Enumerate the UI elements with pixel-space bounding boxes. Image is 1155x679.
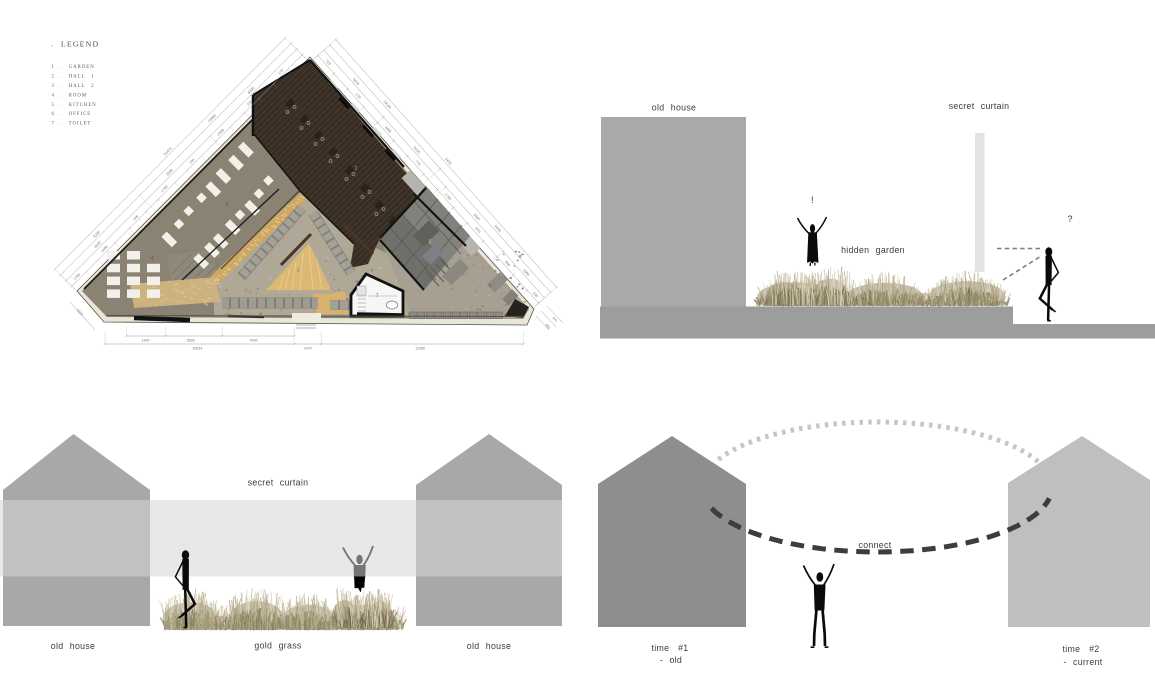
svg-text:4430: 4430	[493, 224, 501, 233]
svg-text:1700: 1700	[160, 185, 168, 193]
svg-text:100: 100	[532, 291, 539, 298]
svg-text:5: 5	[429, 239, 432, 245]
svg-text:- old: - old	[660, 655, 682, 665]
svg-text:3945: 3945	[472, 213, 480, 222]
svg-text:170: 170	[277, 68, 284, 75]
svg-text:24470: 24470	[163, 147, 173, 157]
svg-text:old house: old house	[652, 103, 696, 113]
svg-text:6 . OFFICE: 6 . OFFICE	[52, 112, 92, 117]
svg-text:1470: 1470	[304, 347, 312, 351]
svg-text:connect: connect	[859, 540, 892, 550]
svg-text:secret curtain: secret curtain	[949, 101, 1010, 111]
svg-text:4030: 4030	[250, 339, 258, 343]
svg-text:7 . TOILET: 7 . TOILET	[52, 122, 92, 127]
svg-text:4: 4	[151, 256, 154, 262]
svg-text:gold grass: gold grass	[254, 641, 301, 651]
svg-text:3480: 3480	[384, 125, 392, 134]
svg-text:725: 725	[325, 59, 332, 66]
svg-text:!: !	[811, 195, 814, 206]
svg-text:4 . ROOM: 4 . ROOM	[52, 93, 88, 98]
svg-text:6: 6	[489, 283, 492, 289]
svg-text:1780: 1780	[444, 192, 452, 201]
svg-text:secret curtain: secret curtain	[248, 478, 309, 488]
svg-text:7: 7	[376, 293, 379, 299]
svg-text:11086: 11086	[415, 347, 425, 351]
svg-text:2 . HALL 1: 2 . HALL 1	[52, 75, 95, 80]
svg-text:5 . KITCHEN: 5 . KITCHEN	[52, 103, 97, 108]
svg-text:970: 970	[551, 316, 558, 323]
svg-text:hidden garden: hidden garden	[841, 245, 905, 255]
svg-text:old house: old house	[467, 641, 511, 651]
svg-text:6020: 6020	[93, 240, 101, 248]
svg-text:775: 775	[414, 160, 421, 167]
svg-text:3: 3	[226, 202, 229, 208]
svg-text:1705: 1705	[73, 273, 81, 281]
svg-text:1 . GARDEN: 1 . GARDEN	[52, 65, 95, 70]
svg-text:1905: 1905	[522, 268, 530, 277]
svg-text:time #2: time #2	[1063, 644, 1100, 654]
svg-text:860: 860	[504, 260, 511, 267]
svg-text:2: 2	[355, 166, 358, 172]
svg-text:3695: 3695	[187, 339, 195, 343]
svg-text:10834: 10834	[192, 347, 202, 351]
svg-text:9155: 9155	[413, 146, 421, 155]
svg-text:970: 970	[474, 227, 481, 234]
svg-text:2415: 2415	[444, 157, 452, 166]
svg-text:246: 246	[189, 158, 196, 165]
svg-text:old house: old house	[51, 641, 95, 651]
svg-text:9235: 9235	[93, 230, 101, 238]
svg-text:- current: - current	[1063, 657, 1102, 667]
svg-text:1490: 1490	[142, 339, 150, 343]
svg-text:time #1: time #1	[652, 643, 689, 653]
svg-text:2110: 2110	[76, 308, 84, 316]
svg-text:1: 1	[297, 268, 300, 274]
svg-text:3530: 3530	[165, 168, 173, 176]
svg-text:3 . HALL 2: 3 . HALL 2	[52, 84, 95, 89]
svg-text:440: 440	[544, 323, 551, 330]
svg-text:5619: 5619	[352, 77, 360, 86]
svg-text:170: 170	[355, 92, 362, 99]
svg-text:2680: 2680	[217, 128, 225, 136]
svg-text:?: ?	[1067, 214, 1073, 225]
svg-text:. LEGEND: . LEGEND	[51, 40, 99, 49]
